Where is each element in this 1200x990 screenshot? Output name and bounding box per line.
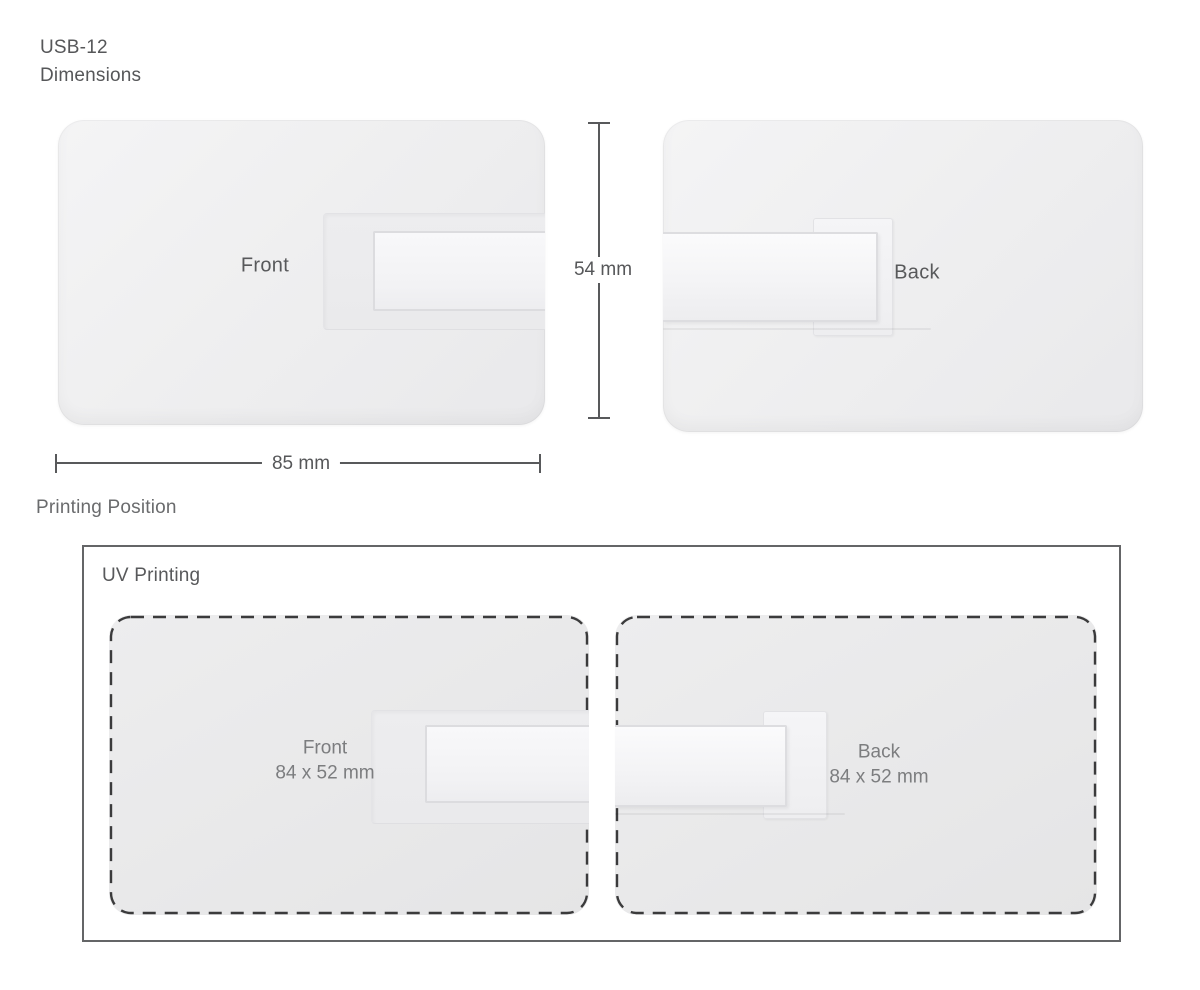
usb-connector-plate <box>663 232 878 322</box>
uv-printing-label: UV Printing <box>102 565 200 587</box>
print-back-size: 84 x 52 mm <box>829 765 928 790</box>
section-title-printing-position: Printing Position <box>36 497 177 519</box>
dimension-cap-right <box>539 454 541 473</box>
dimension-cap-bottom <box>588 417 610 419</box>
usb-connector-plate <box>373 231 545 311</box>
print-area-back-text: Back 84 x 52 mm <box>829 740 928 789</box>
width-dimension-label: 85 mm <box>262 451 340 477</box>
printing-position-box: UV Printing Front 84 x 52 mm Back 84 x 5… <box>82 545 1121 942</box>
usb-card-front-photo: Front <box>58 120 545 425</box>
print-area-back: Back 84 x 52 mm <box>615 615 1097 915</box>
print-area-front-text: Front 84 x 52 mm <box>275 736 374 785</box>
print-front-size: 84 x 52 mm <box>275 761 374 786</box>
usb-connector-seam <box>615 813 845 815</box>
usb-connector-plate <box>615 725 787 807</box>
print-back-label: Back <box>829 740 928 765</box>
model-name: USB-12 <box>40 34 141 62</box>
front-card-label: Front <box>241 255 289 278</box>
height-dimension-label: 54 mm <box>564 257 642 283</box>
usb-card-back-photo: Back <box>663 120 1143 432</box>
back-card-label: Back <box>894 262 940 285</box>
print-area-front: Front 84 x 52 mm <box>109 615 589 915</box>
section-title-dimensions: Dimensions <box>40 62 141 90</box>
document-title: USB-12 Dimensions <box>40 34 141 89</box>
usb-connector-plate <box>425 725 589 803</box>
print-front-label: Front <box>275 736 374 761</box>
usb-connector-seam <box>663 328 931 330</box>
